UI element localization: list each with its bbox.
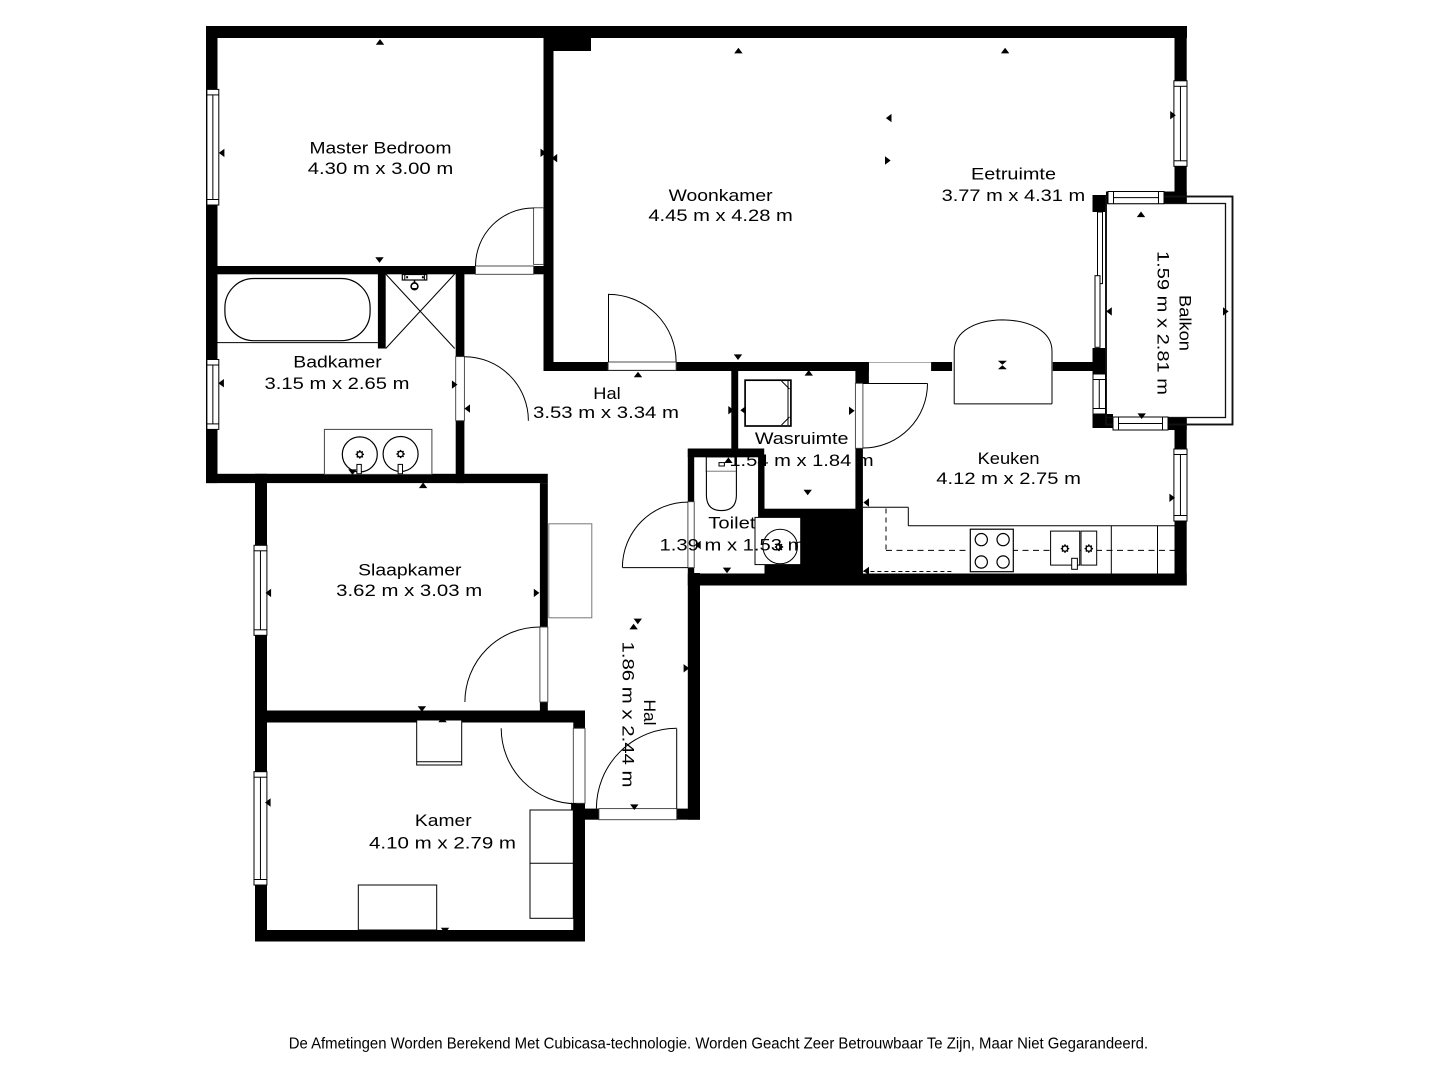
svg-text:3.77 m x 4.31 m: 3.77 m x 4.31 m (942, 186, 1086, 205)
svg-text:Master Bedroom: Master Bedroom (310, 139, 452, 158)
svg-text:1.39 m x 1.53 m: 1.39 m x 1.53 m (660, 536, 805, 555)
svg-text:4.30 m x 3.00 m: 4.30 m x 3.00 m (308, 159, 454, 178)
svg-text:Balkon: Balkon (1175, 295, 1194, 351)
svg-text:4.12 m x 2.75 m: 4.12 m x 2.75 m (936, 469, 1081, 488)
svg-text:Badkamer: Badkamer (293, 353, 382, 372)
svg-text:1.54 m x 1.84 m: 1.54 m x 1.84 m (729, 451, 873, 470)
svg-text:Toilet: Toilet (708, 513, 756, 532)
svg-text:De Afmetingen Worden Berekend: De Afmetingen Worden Berekend Met Cubica… (289, 1036, 1148, 1053)
svg-text:3.53 m x 3.34 m: 3.53 m x 3.34 m (533, 403, 679, 422)
svg-text:Wasruimte: Wasruimte (755, 429, 849, 448)
svg-text:1.59 m x 2.81 m: 1.59 m x 2.81 m (1154, 251, 1173, 395)
svg-text:Woonkamer: Woonkamer (669, 186, 773, 205)
svg-text:4.45 m x 4.28 m: 4.45 m x 4.28 m (648, 206, 793, 225)
svg-text:3.62 m x 3.03 m: 3.62 m x 3.03 m (336, 581, 482, 600)
svg-text:Hal: Hal (640, 700, 659, 726)
svg-text:Eetruimte: Eetruimte (971, 165, 1056, 184)
svg-text:Hal: Hal (593, 384, 620, 403)
svg-text:Keuken: Keuken (978, 449, 1040, 468)
svg-text:4.10 m x 2.79 m: 4.10 m x 2.79 m (369, 834, 516, 853)
svg-text:Kamer: Kamer (415, 811, 472, 830)
svg-text:Slaapkamer: Slaapkamer (358, 561, 462, 580)
svg-text:1.86 m x 2.44 m: 1.86 m x 2.44 m (618, 642, 637, 788)
svg-text:3.15 m x 2.65 m: 3.15 m x 2.65 m (265, 374, 410, 393)
